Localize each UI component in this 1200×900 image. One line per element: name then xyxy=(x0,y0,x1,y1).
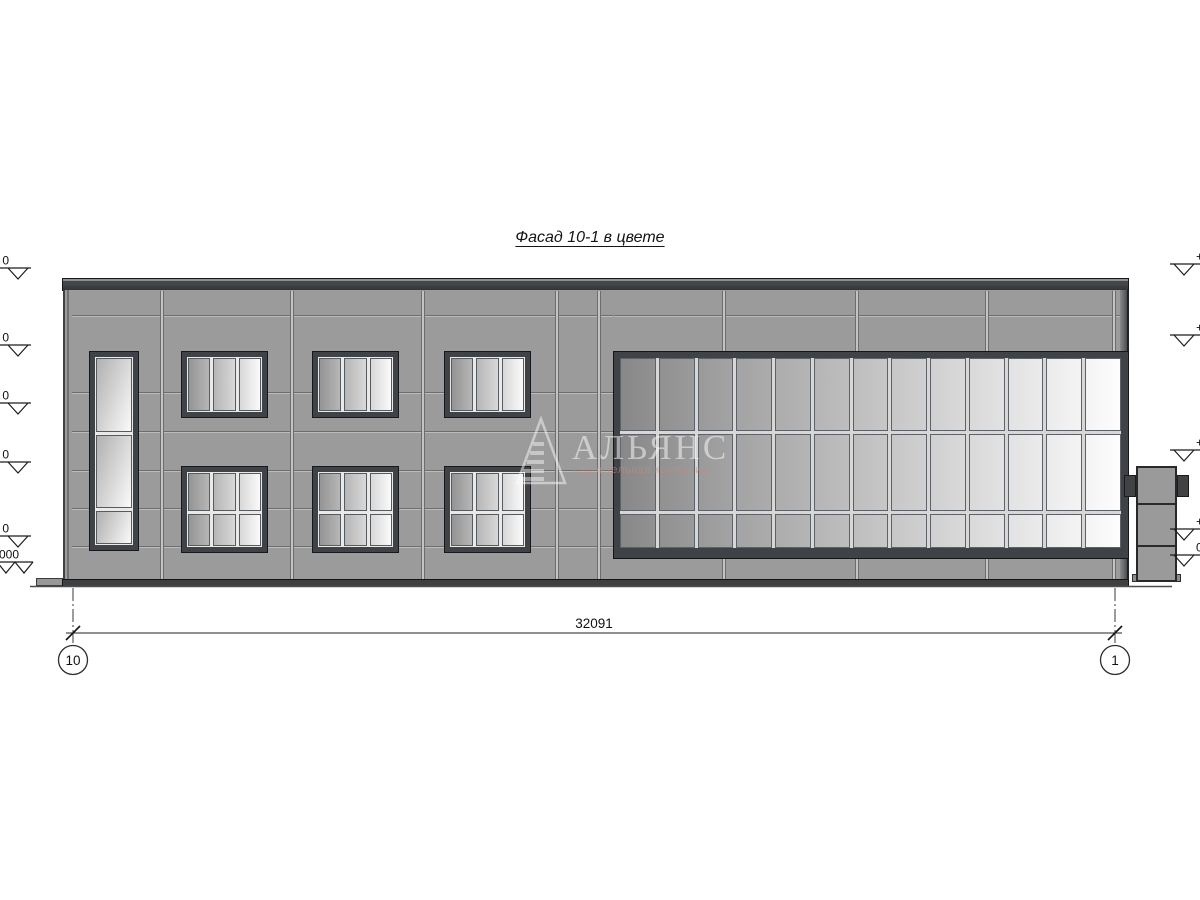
facade-vertical-joint xyxy=(722,291,726,351)
curtain-wall-glass-pane xyxy=(659,358,695,431)
drawing-title: Фасад 10-1 в цвете xyxy=(430,229,750,247)
window-glass-pane xyxy=(476,514,498,546)
curtain-wall-glass-pane xyxy=(891,434,927,511)
window xyxy=(90,352,138,550)
window-glass-pane xyxy=(370,358,392,411)
curtain-wall-glass-pane xyxy=(969,514,1005,548)
elevation-mark-arrow xyxy=(0,562,15,573)
facade-vertical-joint xyxy=(1112,559,1116,579)
curtain-wall-glass-pane xyxy=(698,434,734,511)
elevation-mark-value: 0 xyxy=(2,331,9,345)
window-glass-pane xyxy=(476,358,498,411)
curtain-wall-glass-pane xyxy=(1085,434,1121,511)
curtain-wall-glass-pane xyxy=(1046,514,1082,548)
window-glass-pane xyxy=(213,473,235,511)
window xyxy=(313,352,398,417)
elevation-mark-value: + xyxy=(1196,250,1200,264)
curtain-wall-glass-pane xyxy=(969,358,1005,431)
facade-vertical-joint xyxy=(855,559,859,579)
facade-vertical-joint xyxy=(160,291,164,579)
building-plinth-base xyxy=(62,579,1129,587)
window xyxy=(182,467,267,552)
curtain-wall-glass-pane xyxy=(1046,434,1082,511)
window-glass-pane xyxy=(344,473,366,511)
window-glass-pane xyxy=(451,473,473,511)
elevation-mark-value: 0 xyxy=(1196,541,1200,555)
window-glass-pane xyxy=(213,358,235,411)
curtain-wall-glass-pane xyxy=(1008,514,1044,548)
curtain-wall-glass-pane xyxy=(930,514,966,548)
curtain-wall-glass-pane xyxy=(853,434,889,511)
window-glass-pane xyxy=(476,473,498,511)
grid-bubble-1 xyxy=(1101,646,1130,675)
curtain-wall-glass-pane xyxy=(930,358,966,431)
dimension-tick-left xyxy=(66,626,80,640)
window-glass-pane xyxy=(319,473,341,511)
window-glass-pane xyxy=(96,511,132,544)
pillar-joint-line xyxy=(1137,503,1176,505)
curtain-wall-glass-pane xyxy=(1008,358,1044,431)
elevation-mark-value: 0 xyxy=(2,522,9,536)
window-glass-pane xyxy=(344,514,366,546)
window-glass-pane xyxy=(370,514,392,546)
curtain-wall-glass-pane xyxy=(891,514,927,548)
curtain-wall-glass-pane xyxy=(1085,514,1121,548)
curtain-wall-glass-pane xyxy=(891,358,927,431)
window-glass-pane xyxy=(188,358,210,411)
facade-horizontal-joint xyxy=(72,431,613,433)
window xyxy=(313,467,398,552)
window-glass-pane xyxy=(502,514,524,546)
facade-vertical-joint xyxy=(421,291,425,579)
facade-vertical-joint xyxy=(985,291,989,351)
curtain-wall-glass-pane xyxy=(736,434,772,511)
curtain-wall-glass-pane xyxy=(814,514,850,548)
curtain-wall-glass-pane xyxy=(775,358,811,431)
elevation-mark-value: 0 xyxy=(2,448,9,462)
elevation-mark-arrow xyxy=(8,268,28,279)
plinth-step-left xyxy=(36,578,64,586)
window xyxy=(445,467,530,552)
elevation-mark-value: 0 xyxy=(2,254,9,268)
facade-vertical-joint xyxy=(722,559,726,579)
grid-bubble-10 xyxy=(59,646,88,675)
window-glass-pane xyxy=(239,358,261,411)
elevation-mark-arrow xyxy=(1174,450,1194,461)
grid-bubble-10-label: 10 xyxy=(65,653,80,668)
curtain-wall-glass-pane xyxy=(1085,358,1121,431)
elevation-mark-arrow xyxy=(8,345,28,356)
curtain-wall-glass-pane xyxy=(1008,434,1044,511)
facade-drawing-sheet: Фасад 10-1 в цвете АЛЬЯНС строительная к… xyxy=(0,0,1200,900)
window-glass-pane xyxy=(370,473,392,511)
exterior-duct-pillar xyxy=(1136,466,1177,582)
window-glass-pane xyxy=(213,514,235,546)
window-glass-pane xyxy=(451,514,473,546)
window-glass-pane xyxy=(239,514,261,546)
elevation-mark-arrow xyxy=(8,462,28,473)
curtain-wall-glass-pane xyxy=(775,434,811,511)
pillar-bracket-right xyxy=(1177,475,1189,497)
elevation-mark-arrow xyxy=(1174,555,1194,566)
curtain-wall-glass-pane xyxy=(659,514,695,548)
window-glass-pane xyxy=(96,435,132,508)
window-glass-pane xyxy=(319,514,341,546)
window-glass-pane xyxy=(502,358,524,411)
building-left-corner-trim xyxy=(63,290,72,579)
curtain-wall-glass-pane xyxy=(775,514,811,548)
facade-vertical-joint xyxy=(855,291,859,351)
window xyxy=(182,352,267,417)
window-glass-pane xyxy=(319,358,341,411)
curtain-wall-glass-pane xyxy=(698,358,734,431)
window-glass-pane xyxy=(451,358,473,411)
facade-vertical-joint xyxy=(985,559,989,579)
window-glass-pane xyxy=(96,358,132,432)
facade-vertical-joint xyxy=(555,291,559,579)
elevation-mark-arrow xyxy=(1174,335,1194,346)
elevation-mark-arrow xyxy=(8,403,28,414)
facade-vertical-joint xyxy=(1112,291,1116,351)
curtain-wall-glass-pane xyxy=(620,358,656,431)
elevation-mark-arrow xyxy=(1174,264,1194,275)
curtain-wall-glass-pane xyxy=(1046,358,1082,431)
elevation-mark-value: + xyxy=(1196,321,1200,335)
curtain-wall-glass-pane xyxy=(736,358,772,431)
dimension-value: 32091 xyxy=(575,616,613,631)
curtain-wall-glass-pane xyxy=(736,514,772,548)
curtain-wall-glass-pane xyxy=(620,514,656,548)
elevation-mark-value: + xyxy=(1196,436,1200,450)
facade-band-above-curtain-wall xyxy=(613,290,1129,351)
window-glass-pane xyxy=(502,473,524,511)
curtain-wall-glass-pane xyxy=(659,434,695,511)
facade-horizontal-joint xyxy=(72,315,613,317)
facade-vertical-joint xyxy=(290,291,294,579)
elevation-mark-arrow xyxy=(15,562,33,573)
grid-bubble-1-label: 1 xyxy=(1111,653,1119,668)
facade-band-below-curtain-wall xyxy=(613,559,1129,579)
elevation-mark-value: .000 xyxy=(0,548,19,562)
elevation-mark-value: + xyxy=(1196,515,1200,529)
window-glass-pane xyxy=(239,473,261,511)
window-glass-pane xyxy=(344,358,366,411)
curtain-wall-glass-pane xyxy=(853,514,889,548)
dimension-tick-right xyxy=(1108,626,1122,640)
window-glass-pane xyxy=(188,473,210,511)
pillar-bracket-left xyxy=(1124,475,1136,497)
curtain-wall-glass-pane xyxy=(814,358,850,431)
elevation-mark-arrow xyxy=(8,536,28,547)
elevation-mark-value: 0 xyxy=(2,389,9,403)
curtain-wall-glass-pane xyxy=(969,434,1005,511)
curtain-wall-glass-pane xyxy=(698,514,734,548)
window-glass-pane xyxy=(188,514,210,546)
curtain-wall-glass-pane xyxy=(853,358,889,431)
elevation-mark-arrow xyxy=(1174,529,1194,540)
facade-vertical-joint xyxy=(597,291,601,579)
curtain-wall-glass-pane xyxy=(814,434,850,511)
facade-horizontal-joint xyxy=(614,315,1120,317)
pillar-joint-line xyxy=(1137,545,1176,547)
curtain-wall-glass-pane xyxy=(620,434,656,511)
curtain-wall-glass-pane xyxy=(930,434,966,511)
window xyxy=(445,352,530,417)
